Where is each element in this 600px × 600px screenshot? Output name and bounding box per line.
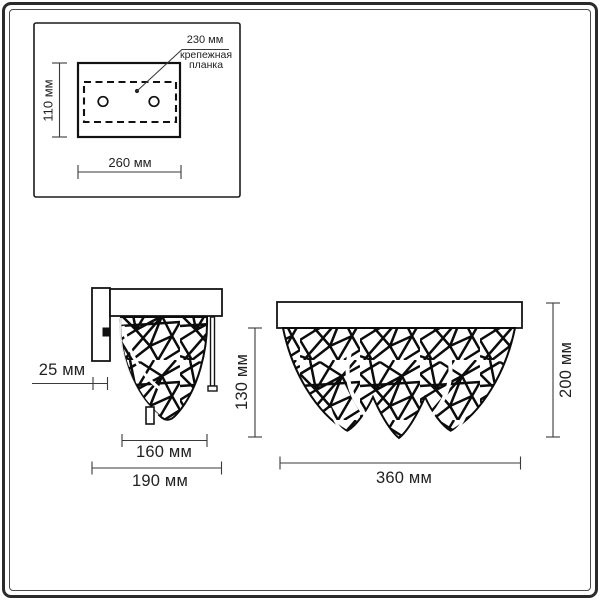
front-height-label: 200 мм bbox=[558, 340, 574, 400]
top-bar-front bbox=[277, 302, 522, 328]
dim-360 bbox=[280, 457, 521, 470]
shade-front bbox=[283, 328, 515, 438]
top-bar-side bbox=[110, 289, 222, 316]
wall-plate bbox=[92, 288, 110, 361]
side-rod bbox=[211, 317, 215, 386]
shade-side bbox=[120, 317, 207, 420]
switch-knob bbox=[103, 328, 111, 337]
front-view bbox=[277, 302, 560, 470]
drawing-svg bbox=[0, 0, 600, 600]
product-dimension-drawing: 230 мм крепежная планка 110 мм 260 мм 25… bbox=[0, 0, 600, 600]
screw-hole-left bbox=[98, 97, 108, 107]
mounting-height-label: 110 мм bbox=[42, 71, 57, 131]
side-height-label: 130 мм bbox=[234, 352, 250, 412]
bracket-depth-label: 25 мм bbox=[32, 362, 92, 379]
canopy-outline bbox=[78, 63, 180, 137]
bottom-tab bbox=[146, 407, 154, 424]
front-width-label: 360 мм bbox=[374, 470, 434, 487]
bracket-width-label: 230 мм bbox=[175, 35, 235, 47]
bracket-name-line2: планка bbox=[176, 60, 236, 71]
side-rod-foot bbox=[208, 386, 217, 391]
total-depth-label: 190 мм bbox=[130, 473, 190, 490]
screw-hole-right bbox=[149, 97, 159, 107]
shade-width-label: 160 мм bbox=[134, 444, 194, 461]
mounting-width-label: 260 мм bbox=[100, 156, 160, 170]
